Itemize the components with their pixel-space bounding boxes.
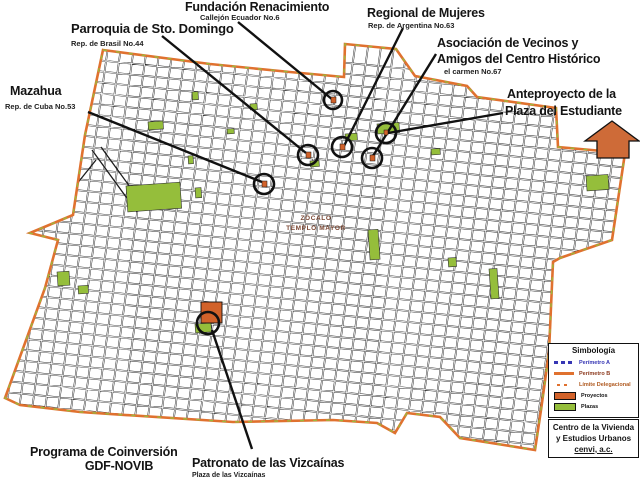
- callout-asociacion-subtitle: el carmen No.67: [444, 68, 502, 76]
- plazas-swatch: [554, 403, 576, 411]
- perimetro-a-swatch: [554, 361, 574, 364]
- legend-title: Simbología: [552, 346, 635, 355]
- proyectos-swatch: [554, 392, 576, 400]
- callout-regional-title: Regional de Mujeres: [367, 7, 485, 20]
- callout-asociacion-title-line2: Amigos del Centro Histórico: [437, 53, 600, 66]
- map-canvas: [0, 0, 640, 480]
- limite-delegacional-label: Límite Delegacional: [579, 382, 631, 388]
- credit-line2: y Estudios Urbanos: [549, 434, 638, 445]
- credit-line3: cenvi, a.c.: [549, 445, 638, 456]
- proyectos-label: Proyectos: [581, 393, 608, 399]
- callout-fundacion-title: Fundación Renacimiento: [185, 1, 329, 14]
- project-mark: [384, 130, 388, 135]
- legend: Simbología Perímetro APerímetro BLímite …: [548, 343, 639, 418]
- legend-item-perimetro-b: Perímetro B: [554, 369, 633, 378]
- project-mark: [306, 152, 311, 158]
- credit-box: Centro de la Vivienda y Estudios Urbanos…: [548, 419, 639, 458]
- legend-item-proyectos: Proyectos: [554, 391, 633, 400]
- legend-item-limite-delegacional: Límite Delegacional: [554, 380, 633, 389]
- project-mark: [370, 155, 375, 161]
- callout-programa-title: Programa de Coinversión: [30, 446, 178, 459]
- map-page: ZÓCALO TEMPLO MAYOR Fundación Renacimien…: [0, 0, 640, 480]
- callout-anteproyecto-title-line1: Anteproyecto de la: [507, 88, 616, 101]
- perimetro-b-label: Perímetro B: [579, 371, 610, 377]
- plazas-label: Plazas: [581, 404, 598, 410]
- legend-item-plazas: Plazas: [554, 402, 633, 411]
- legend-item-perimetro-a: Perímetro A: [554, 358, 633, 367]
- project-mark: [340, 144, 345, 150]
- callout-anteproyecto-title-line2: Plaza del Estudiante: [505, 105, 622, 118]
- perimetro-a-label: Perímetro A: [579, 360, 610, 366]
- callout-mazahua-title: Mazahua: [10, 85, 61, 98]
- limite-delegacional-swatch: [557, 384, 571, 386]
- callout-patronato-title: Patronato de las Vizcaínas: [192, 457, 344, 470]
- perimetro-b-swatch: [554, 372, 574, 375]
- legend-items: Perímetro APerímetro BLímite Delegaciona…: [552, 358, 635, 411]
- credit-line1: Centro de la Vivienda: [549, 423, 638, 434]
- project-mark: [331, 97, 336, 103]
- callout-asociacion-title-line1: Asociación de Vecinos y: [437, 37, 578, 50]
- project-mark: [262, 181, 267, 187]
- callout-regional-subtitle: Rep. de Argentina No.63: [368, 22, 454, 30]
- zocalo-templo-mayor-label: ZÓCALO TEMPLO MAYOR: [278, 214, 354, 234]
- callout-mazahua-subtitle: Rep. de Cuba No.53: [5, 103, 75, 111]
- callout-parroquia-subtitle: Rep. de Brasil No.44: [71, 40, 144, 48]
- callout-patronato-subtitle: Plaza de las Vizcaínas: [192, 472, 265, 479]
- callout-parroquia-title: Parroquia de Sto. Domingo: [71, 22, 234, 35]
- callout-programa-subtitle: GDF-NOVIB: [30, 460, 208, 473]
